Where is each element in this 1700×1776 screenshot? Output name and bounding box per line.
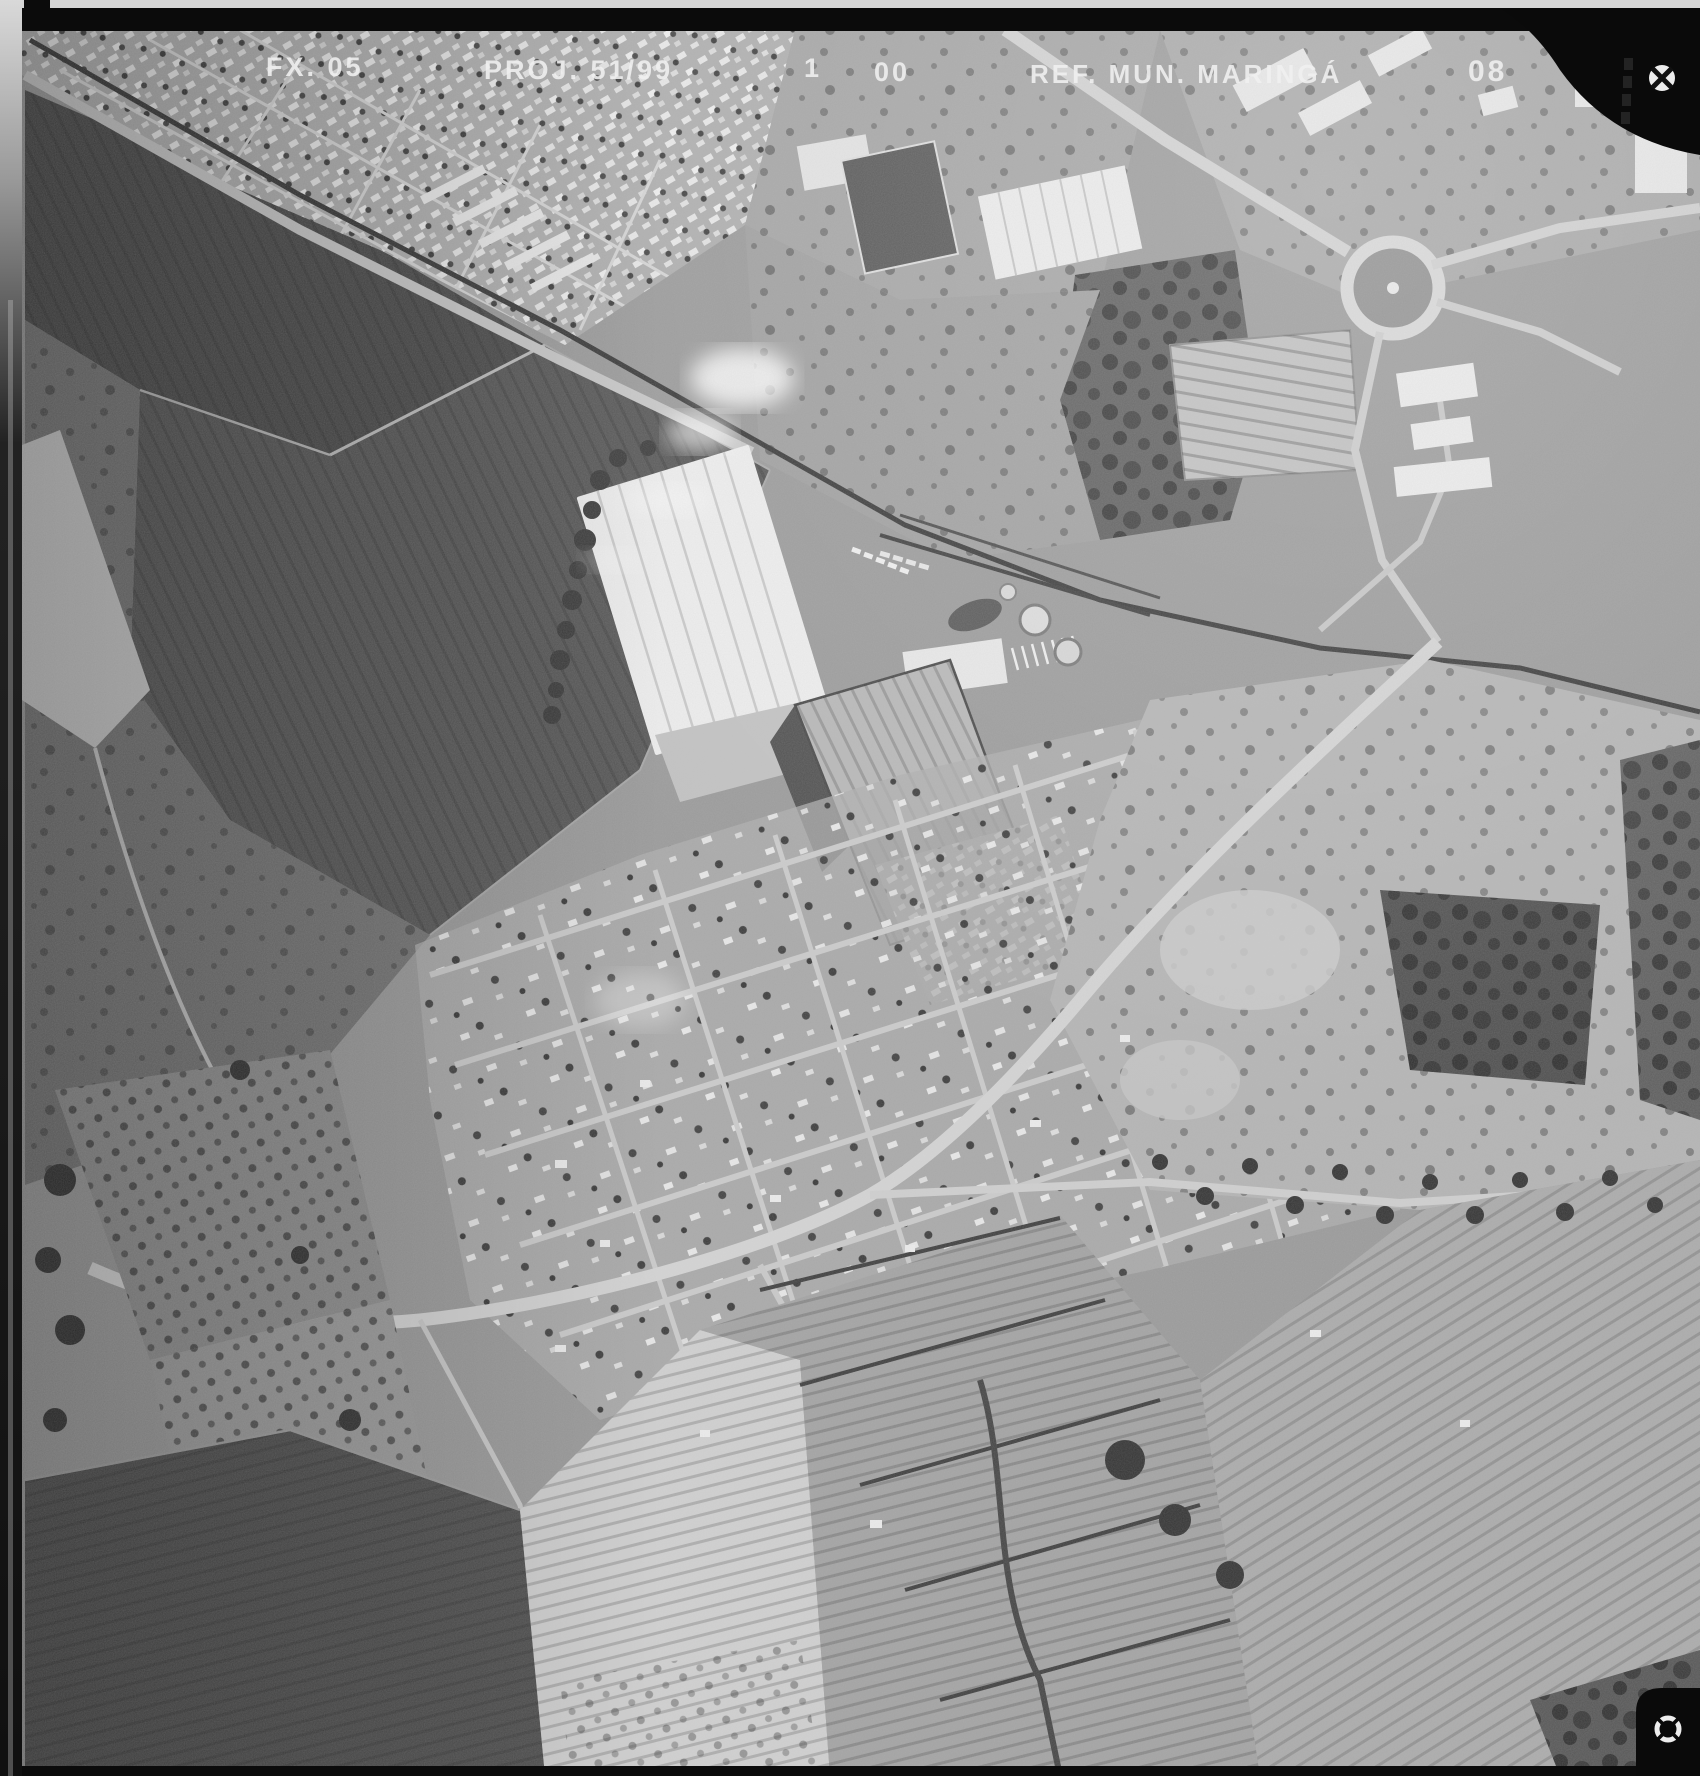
film-edge-bar-top — [22, 8, 1700, 31]
fiducial-top-right-crosshair-icon — [1649, 65, 1675, 91]
film-grain — [22, 30, 1700, 1776]
scale-digit-label: 1 — [804, 53, 822, 83]
municipality-label: REF. MUN. MARINGÁ — [1030, 59, 1342, 89]
strip-number-label: FX. 05 — [266, 52, 364, 82]
scale-zeros-label: 00 — [874, 57, 910, 87]
aerial-photo-canvas: FX. 05 PROJ. 51/99 1 00 REF. MUN. MARING… — [0, 0, 1700, 1776]
aerial-photo-sheet: FX. 05 PROJ. 51/99 1 00 REF. MUN. MARING… — [0, 0, 1700, 1776]
corner-mask-bottom-right — [1636, 1688, 1700, 1776]
film-notch — [24, 0, 50, 12]
photo-number-label: 08 — [1468, 55, 1507, 88]
paper-edge-top — [0, 0, 1700, 8]
film-edge-line — [8, 300, 13, 1776]
project-number-label: PROJ. 51/99 — [484, 55, 673, 85]
film-edge-bar-bottom — [22, 1766, 1700, 1776]
photo-image — [22, 8, 1700, 1776]
